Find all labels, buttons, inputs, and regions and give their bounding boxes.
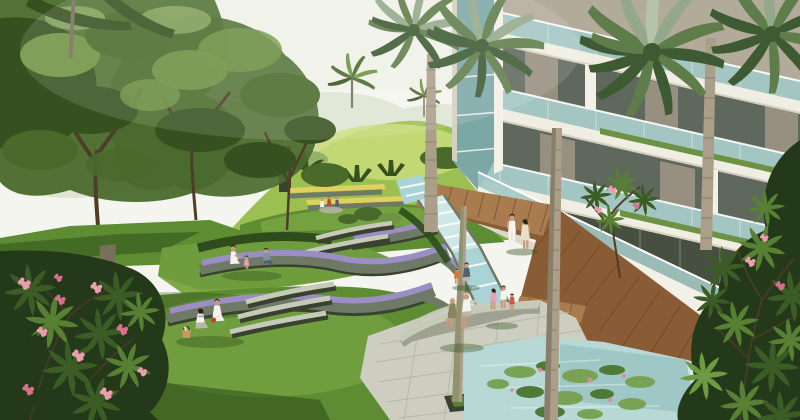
red-bag (211, 317, 216, 322)
landscape-rendering (0, 0, 800, 420)
rendering-canvas (0, 0, 800, 420)
